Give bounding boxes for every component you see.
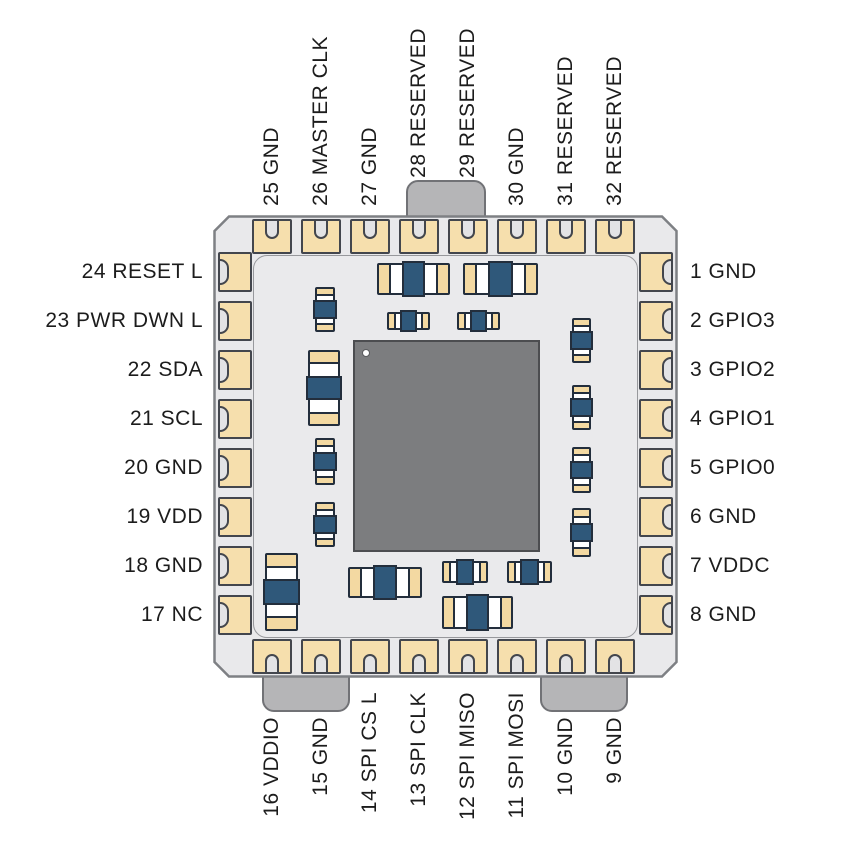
- capacitor-segment: [543, 563, 550, 581]
- pin-label-16: 16 VDDIO: [259, 717, 285, 817]
- capacitor: [463, 263, 538, 295]
- capacitor-segment: [466, 594, 489, 631]
- capacitor-segment: [267, 605, 296, 617]
- capacitor: [442, 561, 488, 583]
- pin-pad-23: [218, 301, 252, 341]
- pin-pad-14: [350, 639, 390, 674]
- capacitor-segment: [317, 504, 333, 511]
- capacitor-segment: [391, 265, 402, 293]
- pin-label-28: 28 RESERVED: [406, 28, 432, 178]
- pin-pad-29: [448, 219, 488, 254]
- castellation-notch: [412, 654, 426, 674]
- pin-pad-28: [399, 219, 439, 254]
- capacitor-segment: [317, 323, 333, 330]
- castellation-notch: [363, 654, 377, 674]
- capacitor-segment: [310, 364, 338, 376]
- capacitor-segment: [350, 569, 362, 596]
- pin-pad-25: [252, 219, 292, 254]
- castellation-notch: [662, 553, 673, 579]
- pin-pad-13: [399, 639, 439, 674]
- capacitor-segment: [425, 265, 436, 293]
- pin-label-26: 26 MASTER CLK: [308, 36, 334, 206]
- capacitor-segment: [362, 569, 373, 596]
- capacitor-segment: [524, 265, 536, 293]
- castellation-notch: [265, 654, 279, 674]
- capacitor-segment: [574, 484, 589, 491]
- castellation-notch: [218, 406, 229, 432]
- pin-label-27: 27 GND: [357, 127, 383, 206]
- castellation-notch: [314, 219, 328, 239]
- capacitor: [457, 312, 500, 330]
- capacitor-segment: [488, 261, 512, 297]
- capacitor-segment: [570, 461, 593, 479]
- capacitor-segment: [310, 352, 338, 364]
- capacitor-segment: [574, 320, 589, 327]
- pin-pad-15: [301, 639, 341, 674]
- castellation-notch: [510, 654, 524, 674]
- capacitor: [442, 596, 513, 629]
- castellation-notch: [559, 219, 573, 239]
- pin-label-21: 21 SCL: [0, 406, 203, 432]
- castellation-notch: [662, 259, 673, 285]
- castellation-notch: [363, 219, 377, 239]
- chip-pinout-diagram: 24 RESET L23 PWR DWN L22 SDA21 SCL20 GND…: [0, 0, 858, 854]
- capacitor-segment: [263, 579, 300, 604]
- pin-pad-21: [218, 399, 252, 439]
- pin-pad-31: [546, 219, 586, 254]
- castellation-notch: [461, 654, 475, 674]
- capacitor-segment: [389, 314, 396, 328]
- capacitor-segment: [373, 565, 397, 600]
- castellation-notch: [218, 455, 229, 481]
- pin-pad-19: [218, 497, 252, 537]
- castellation-notch: [412, 219, 426, 239]
- pin-pad-24: [218, 252, 252, 292]
- castellation-notch: [559, 654, 573, 674]
- castellation-notch: [662, 602, 673, 628]
- castellation-notch: [662, 406, 673, 432]
- capacitor: [315, 438, 335, 485]
- castellation-notch: [218, 259, 229, 285]
- capacitor-segment: [408, 569, 420, 596]
- pin-pad-9: [595, 639, 635, 674]
- pin-label-9: 9 GND: [602, 717, 628, 784]
- castellation-notch: [218, 308, 229, 334]
- pin-label-5: 5 GPIO0: [690, 455, 858, 481]
- pin-pad-5: [639, 448, 673, 488]
- pin-label-7: 7 VDDC: [690, 553, 858, 579]
- capacitor-segment: [317, 289, 333, 296]
- pin-pad-2: [639, 301, 673, 341]
- capacitor-segment: [574, 421, 589, 428]
- top-tab: [406, 180, 486, 220]
- castellation-notch: [218, 553, 229, 579]
- capacitor: [308, 350, 340, 426]
- capacitor-segment: [313, 300, 337, 318]
- capacitor-segment: [313, 515, 337, 533]
- capacitor-segment: [489, 598, 500, 627]
- pin-label-25: 25 GND: [259, 127, 285, 206]
- capacitor: [572, 447, 591, 493]
- capacitor-segment: [500, 598, 511, 627]
- pin-label-17: 17 NC: [0, 602, 203, 628]
- capacitor-segment: [574, 510, 589, 518]
- capacitor-segment: [317, 538, 333, 545]
- capacitor-segment: [574, 547, 589, 555]
- capacitor-segment: [402, 261, 425, 297]
- pin-pad-3: [639, 350, 673, 390]
- pin-pad-18: [218, 546, 252, 586]
- capacitor-segment: [436, 265, 448, 293]
- pin-label-29: 29 RESERVED: [455, 28, 481, 178]
- castellation-notch: [662, 308, 673, 334]
- capacitor-segment: [267, 568, 296, 580]
- capacitor-segment: [574, 449, 589, 456]
- capacitor-segment: [465, 265, 477, 293]
- capacitor-segment: [400, 310, 417, 332]
- pin-label-14: 14 SPI CS L: [357, 692, 383, 813]
- pin-label-24: 24 RESET L: [0, 259, 203, 285]
- pin1-marker-dot: [362, 349, 370, 357]
- castellation-notch: [314, 654, 328, 674]
- capacitor-segment: [520, 559, 538, 585]
- pin-label-30: 30 GND: [504, 127, 530, 206]
- pin-pad-32: [595, 219, 635, 254]
- pin-pad-30: [497, 219, 537, 254]
- pin-label-19: 19 VDD: [0, 504, 203, 530]
- pin-pad-17: [218, 595, 252, 635]
- capacitor-segment: [397, 569, 408, 596]
- capacitor: [507, 561, 552, 583]
- capacitor-segment: [317, 476, 333, 483]
- castellation-notch: [218, 602, 229, 628]
- capacitor-segment: [421, 314, 428, 328]
- pin-label-2: 2 GPIO3: [690, 308, 858, 334]
- pin-label-18: 18 GND: [0, 553, 203, 579]
- pin-pad-11: [497, 639, 537, 674]
- pin-label-13: 13 SPI CLK: [406, 692, 432, 807]
- pin-label-31: 31 RESERVED: [553, 56, 579, 206]
- capacitor-segment: [317, 440, 333, 447]
- pin-pad-26: [301, 219, 341, 254]
- pin-pad-20: [218, 448, 252, 488]
- pin-label-20: 20 GND: [0, 455, 203, 481]
- capacitor-segment: [570, 523, 593, 543]
- pin-pad-10: [546, 639, 586, 674]
- capacitor-segment: [310, 412, 338, 424]
- capacitor: [572, 508, 591, 557]
- capacitor: [387, 312, 430, 330]
- capacitor-segment: [455, 598, 466, 627]
- capacitor-segment: [570, 398, 593, 416]
- pin-label-3: 3 GPIO2: [690, 357, 858, 383]
- capacitor-segment: [267, 616, 296, 629]
- pin-label-32: 32 RESERVED: [602, 56, 628, 206]
- pin-label-11: 11 SPI MOSI: [504, 692, 530, 819]
- capacitor: [265, 553, 298, 631]
- pin-pad-7: [639, 546, 673, 586]
- capacitor-segment: [574, 387, 589, 394]
- capacitor-segment: [306, 376, 342, 400]
- pin-label-1: 1 GND: [690, 259, 858, 285]
- pin-label-23: 23 PWR DWN L: [0, 308, 203, 334]
- castellation-notch: [662, 357, 673, 383]
- capacitor-segment: [574, 354, 589, 361]
- capacitor: [572, 318, 591, 363]
- castellation-notch: [265, 219, 279, 239]
- capacitor-segment: [310, 400, 338, 412]
- pin-pad-8: [639, 595, 673, 635]
- capacitor: [315, 502, 335, 547]
- capacitor-segment: [491, 314, 498, 328]
- castellation-notch: [608, 654, 622, 674]
- chip-package: [213, 215, 678, 678]
- capacitor-segment: [479, 563, 486, 581]
- capacitor-segment: [379, 265, 391, 293]
- pin-label-22: 22 SDA: [0, 357, 203, 383]
- capacitor: [315, 287, 335, 332]
- pin-label-15: 15 GND: [308, 717, 334, 796]
- castellation-notch: [662, 455, 673, 481]
- capacitor-segment: [570, 331, 593, 349]
- castellation-notch: [218, 504, 229, 530]
- pin-label-4: 4 GPIO1: [690, 406, 858, 432]
- pin-pad-1: [639, 252, 673, 292]
- castellation-notch: [461, 219, 475, 239]
- capacitor-segment: [456, 559, 474, 585]
- pin-label-6: 6 GND: [690, 504, 858, 530]
- capacitor-segment: [459, 314, 466, 328]
- capacitor-segment: [267, 555, 296, 568]
- capacitor-segment: [470, 310, 487, 332]
- castellation-notch: [608, 219, 622, 239]
- capacitor-segment: [444, 563, 451, 581]
- pin-pad-4: [639, 399, 673, 439]
- pin-label-12: 12 SPI MISO: [455, 692, 481, 820]
- castellation-notch: [662, 504, 673, 530]
- capacitor-segment: [313, 452, 337, 471]
- capacitor-segment: [444, 598, 455, 627]
- pin-pad-27: [350, 219, 390, 254]
- capacitor-segment: [477, 265, 488, 293]
- pin-pad-16: [252, 639, 292, 674]
- castellation-notch: [510, 219, 524, 239]
- die: [353, 340, 540, 552]
- pin-label-10: 10 GND: [553, 717, 579, 796]
- capacitor-segment: [513, 265, 524, 293]
- pin-pad-6: [639, 497, 673, 537]
- pin-pad-12: [448, 639, 488, 674]
- pin-label-8: 8 GND: [690, 602, 858, 628]
- capacitor: [377, 263, 450, 295]
- pin-pad-22: [218, 350, 252, 390]
- capacitor: [348, 567, 422, 598]
- capacitor-segment: [509, 563, 516, 581]
- castellation-notch: [218, 357, 229, 383]
- capacitor: [572, 385, 591, 430]
